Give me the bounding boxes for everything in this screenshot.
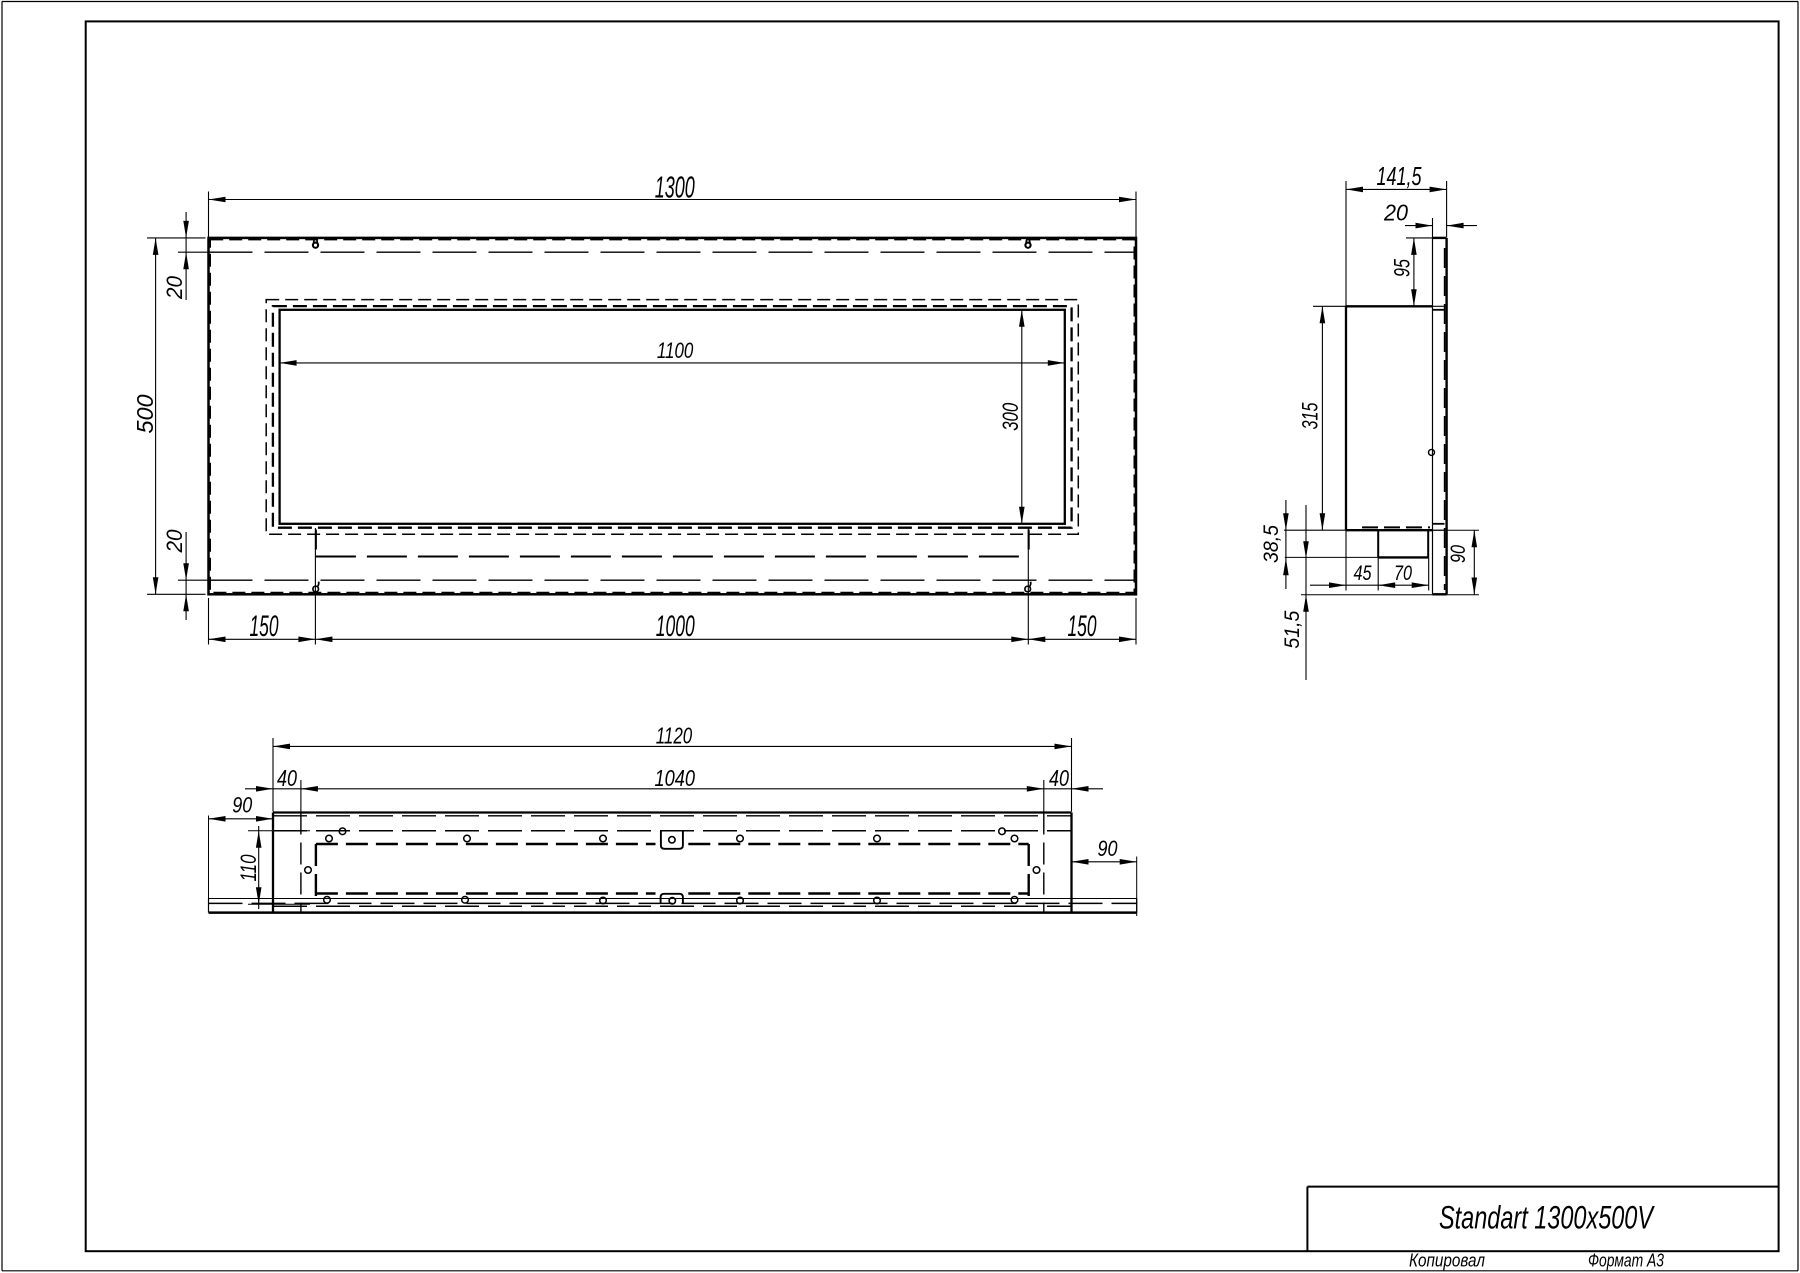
svg-text:40: 40 <box>277 765 297 791</box>
svg-text:1100: 1100 <box>657 338 694 363</box>
svg-text:70: 70 <box>1394 562 1412 585</box>
svg-text:1040: 1040 <box>655 765 696 791</box>
svg-text:Копировал: Копировал <box>1409 1250 1485 1271</box>
svg-text:500: 500 <box>132 394 158 433</box>
svg-text:300: 300 <box>998 402 1023 430</box>
svg-text:90: 90 <box>232 793 253 818</box>
svg-text:150: 150 <box>250 610 279 643</box>
svg-text:20: 20 <box>1383 200 1408 226</box>
svg-text:90: 90 <box>1447 545 1470 563</box>
svg-text:1000: 1000 <box>656 610 695 643</box>
svg-text:40: 40 <box>1049 765 1069 791</box>
svg-text:20: 20 <box>162 529 187 554</box>
svg-text:315: 315 <box>1298 402 1323 430</box>
svg-text:Standart 1300x500V: Standart 1300x500V <box>1439 1200 1655 1236</box>
svg-text:20: 20 <box>162 275 187 300</box>
svg-text:141,5: 141,5 <box>1377 161 1422 191</box>
svg-text:51,5: 51,5 <box>1281 610 1304 648</box>
svg-text:1120: 1120 <box>656 722 693 748</box>
svg-text:1300: 1300 <box>655 169 695 204</box>
svg-text:110: 110 <box>236 854 261 882</box>
svg-text:38,5: 38,5 <box>1260 525 1283 563</box>
svg-text:90: 90 <box>1098 836 1119 861</box>
svg-text:95: 95 <box>1390 258 1415 277</box>
svg-text:Формат А3: Формат А3 <box>1588 1250 1665 1271</box>
svg-text:150: 150 <box>1068 610 1097 643</box>
svg-text:45: 45 <box>1354 562 1372 585</box>
